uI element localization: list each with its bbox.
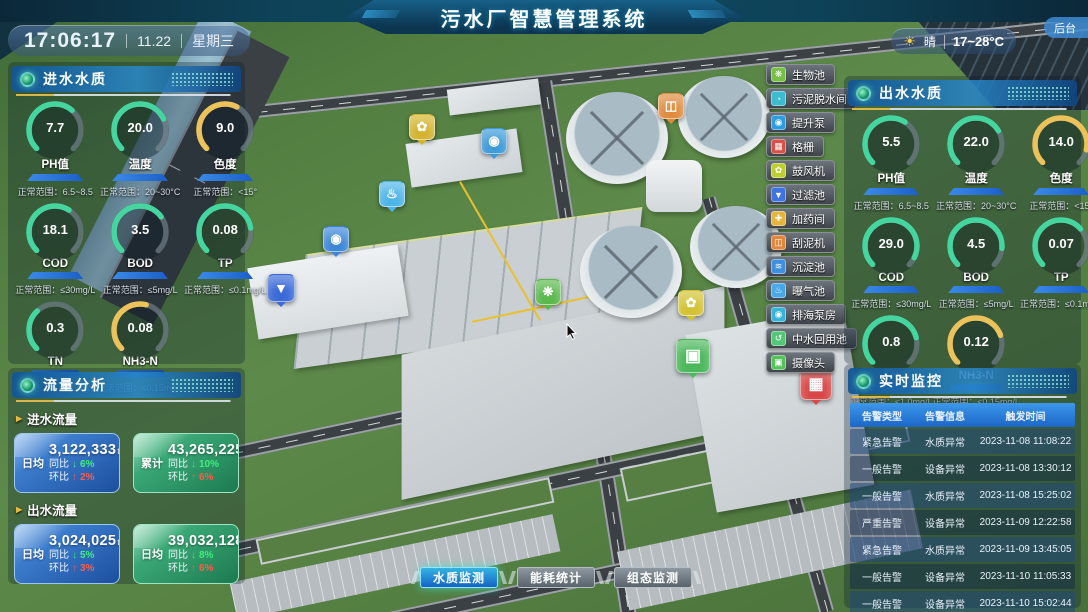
mom-percent: 6% xyxy=(199,562,213,575)
sun-icon: ☀ xyxy=(903,33,916,50)
gauge-value: 29.0 xyxy=(859,236,923,251)
legend-label: 摄像头 xyxy=(792,355,825,371)
panel-title: 出水水质 xyxy=(879,83,943,103)
gauge-normal-range: 正常范围：20~30°C xyxy=(100,185,180,198)
gauge-pedestal xyxy=(863,188,919,195)
gauge-pedestal xyxy=(112,272,168,279)
flow-card-累计: 累计 43,265,225t 同比↓10% 环比↑6% xyxy=(133,433,239,493)
yoy-percent: 8% xyxy=(199,549,213,562)
alarm-cell: 设备异常 xyxy=(914,461,976,476)
footer-nav: 水质监测能耗统计组态监测 xyxy=(420,567,692,588)
alarm-row: 一般告警设备异常2023-11-08 13:30:12 xyxy=(850,456,1075,481)
alarm-cell: 设备异常 xyxy=(914,569,976,584)
backstage-button[interactable]: 后台 xyxy=(1044,17,1088,38)
down-arrow-icon: ↓ xyxy=(72,458,77,471)
weather-widget: ☀ 晴 17~28°C xyxy=(891,28,1016,54)
pump-marker[interactable]: ◉ xyxy=(323,226,349,252)
gauge-value: 0.12 xyxy=(944,334,1008,349)
central-pump-structure xyxy=(646,160,702,212)
flow-value: 3,024,025t xyxy=(49,533,120,549)
map-legend-item-filter-pool[interactable]: ▼ 过滤池 xyxy=(766,184,835,205)
gauge-normal-range: 正常范围：6.5~8.5 xyxy=(18,185,93,198)
gauge-value: 0.3 xyxy=(23,320,87,335)
up-arrow-icon: ↑ xyxy=(72,471,77,484)
map-legend-item-camera[interactable]: ▣ 摄像头 xyxy=(766,352,835,373)
flow-analysis-panel: 流量分析 ▶进水流量日均 3,122,333t 同比↓6% 环比↑2% 累计 4… xyxy=(8,368,245,584)
gauge-色度: 9.0 色度 正常范围：<15° xyxy=(184,100,266,198)
alarm-table: 告警类型告警信息触发时间紧急告警水质异常2023-11-08 11:08:22一… xyxy=(848,403,1077,612)
scraper-icon: ◫ xyxy=(771,235,786,250)
filter-pool-icon: ▼ xyxy=(771,187,786,202)
alarm-cell: 设备异常 xyxy=(914,515,976,530)
gauge-value: 3.5 xyxy=(108,222,172,237)
legend-label: 加药间 xyxy=(792,211,825,227)
legend-label: 中水回用池 xyxy=(792,331,847,347)
header-underline xyxy=(16,94,237,96)
alarm-cell: 一般告警 xyxy=(850,596,914,611)
gauge-value: 14.0 xyxy=(1029,134,1088,149)
gauge-COD: 18.1 COD 正常范围：≤30mg/L xyxy=(14,202,96,296)
flow-value: 3,122,333t xyxy=(49,442,120,458)
up-arrow-icon: ↑ xyxy=(72,562,77,575)
triangle-icon: ▶ xyxy=(16,414,22,423)
panel-title: 进水水质 xyxy=(43,69,107,89)
alarm-row: 一般告警设备异常2023-11-10 11:05:33 xyxy=(850,564,1075,589)
gauge-温度: 20.0 温度 正常范围：20~30°C xyxy=(96,100,183,198)
alarm-cell: 一般告警 xyxy=(850,488,914,503)
alarm-cell: 水质异常 xyxy=(914,542,976,557)
legend-label: 污泥脱水间 xyxy=(792,91,847,107)
gauge-normal-range: 正常范围：≤0.1mg/L xyxy=(1020,297,1088,310)
panel-header: 出水水质 xyxy=(848,80,1077,106)
aeration-pool-icon: ♨ xyxy=(771,283,786,298)
aeration-marker[interactable]: ♨ xyxy=(379,181,405,207)
alarm-row: 紧急告警水质异常2023-11-08 11:08:22 xyxy=(850,429,1075,454)
flow-card-tag: 日均 xyxy=(141,546,163,562)
gauge-TP: 0.07 TP 正常范围：≤0.1mg/L xyxy=(1020,216,1088,310)
mom-percent: 2% xyxy=(80,471,94,484)
header-underline xyxy=(852,396,1073,398)
alarm-cell: 紧急告警 xyxy=(850,434,914,449)
panel-orb-icon xyxy=(20,378,35,393)
realtime-monitor-panel: 实时监控 告警类型告警信息触发时间紧急告警水质异常2023-11-08 11:0… xyxy=(844,364,1081,608)
legend-label: 鼓风机 xyxy=(792,163,825,179)
panel-header: 进水水质 xyxy=(12,66,241,92)
legend-label: 刮泥机 xyxy=(792,235,825,251)
legend-label: 曝气池 xyxy=(792,283,825,299)
column-header: 告警信息 xyxy=(914,408,976,423)
divider xyxy=(944,35,945,49)
gauge-pedestal xyxy=(197,174,253,181)
yoy-percent: 5% xyxy=(80,549,94,562)
flow-sections: ▶进水流量日均 3,122,333t 同比↓6% 环比↑2% 累计 43,265… xyxy=(12,409,241,584)
gauge-value: 4.5 xyxy=(944,236,1008,251)
gauge-pedestal xyxy=(197,272,253,279)
divider xyxy=(126,34,127,48)
gauge-value: 0.08 xyxy=(193,222,257,237)
legend-label: 格栅 xyxy=(792,139,814,155)
lift-pump-icon: ◉ xyxy=(771,115,786,130)
map-legend-item-sediment-pool[interactable]: ≋ 沉淀池 xyxy=(766,256,835,277)
gauge-pedestal xyxy=(948,188,1004,195)
legend-label: 排海泵房 xyxy=(792,307,836,323)
inlet-gauge-grid: 7.7 PH值 正常范围：6.5~8.5 20.0 温度 正常范围：20~30°… xyxy=(12,96,241,394)
down-arrow-icon: ↓ xyxy=(191,458,196,471)
map-legend-item-aeration-pool[interactable]: ♨ 曝气池 xyxy=(766,280,835,301)
gauge-value: 5.5 xyxy=(859,134,923,149)
weather-condition: 晴 xyxy=(924,33,936,50)
gauge-pedestal xyxy=(1033,188,1088,195)
flow-card-日均: 日均 3,024,025t 同比↓5% 环比↑3% xyxy=(14,524,120,584)
blower-icon: ✿ xyxy=(771,163,786,178)
footer-button-能耗统计[interactable]: 能耗统计 xyxy=(517,567,595,588)
clock-time: 17:06:17 xyxy=(24,29,116,53)
dosing-room-icon: ✚ xyxy=(771,211,786,226)
map-legend-item-bio-pool[interactable]: ❋ 生物池 xyxy=(766,64,835,85)
header-underline xyxy=(16,400,237,402)
alarm-cell: 紧急告警 xyxy=(850,542,914,557)
alarm-row: 一般告警水质异常2023-11-08 15:25:02 xyxy=(850,483,1075,508)
gauge-TP: 0.08 TP 正常范围：≤0.1mg/L xyxy=(184,202,266,296)
reuse-pool-icon: ↺ xyxy=(771,331,786,346)
camera-icon: ▣ xyxy=(771,355,786,370)
scraper-marker[interactable]: ◫ xyxy=(658,93,684,119)
map-legend-item-sea-pump-house[interactable]: ◉ 排海泵房 xyxy=(766,304,846,325)
banner-decoration xyxy=(362,10,401,18)
map-legend-item-blower[interactable]: ✿ 鼓风机 xyxy=(766,160,835,181)
gauge-normal-range: 正常范围：≤5mg/L xyxy=(939,297,1014,310)
grate-icon: ▦ xyxy=(771,139,786,154)
alarm-cell: 2023-11-08 15:25:02 xyxy=(976,490,1075,501)
dots-decoration xyxy=(1007,374,1069,388)
triangle-icon: ▶ xyxy=(16,505,22,514)
gauge-pedestal xyxy=(112,174,168,181)
sea-pump-house-icon: ◉ xyxy=(771,307,786,322)
gauge-normal-range: 正常范围：6.5~8.5 xyxy=(854,199,929,212)
filter-marker[interactable]: ▼ xyxy=(267,274,295,302)
down-arrow-icon: ↓ xyxy=(191,549,196,562)
weekday: 星期三 xyxy=(192,31,234,51)
gauge-PH值: 7.7 PH值 正常范围：6.5~8.5 xyxy=(14,100,96,198)
gauge-温度: 22.0 温度 正常范围：20~30°C xyxy=(932,114,1019,212)
mouse-cursor xyxy=(566,323,580,341)
yoy-percent: 6% xyxy=(80,458,94,471)
alarm-cell: 2023-11-10 11:05:33 xyxy=(976,571,1075,582)
mom-percent: 6% xyxy=(199,471,213,484)
map-legend-item-grate[interactable]: ▦ 格栅 xyxy=(766,136,824,157)
column-header: 告警类型 xyxy=(850,408,914,423)
flow-card-tag: 累计 xyxy=(141,455,163,471)
outlet-quality-panel: 出水水质 5.5 PH值 正常范围：6.5~8.5 xyxy=(844,76,1081,364)
gauge-value: 0.8 xyxy=(859,334,923,349)
gauge-pedestal xyxy=(27,174,83,181)
flow-card-日均: 日均 3,122,333t 同比↓6% 环比↑2% xyxy=(14,433,120,493)
down-arrow-icon: ↓ xyxy=(72,549,77,562)
alarm-cell: 2023-11-08 13:30:12 xyxy=(976,463,1075,474)
header-underline xyxy=(852,108,1073,110)
blower-marker[interactable]: ✿ xyxy=(409,114,435,140)
flow-value: 39,032,128t xyxy=(168,533,239,549)
panel-header: 实时监控 xyxy=(848,368,1077,394)
bio-marker[interactable]: ❋ xyxy=(535,279,561,305)
alarm-cell: 水质异常 xyxy=(914,488,976,503)
gauge-pedestal xyxy=(948,286,1004,293)
gauge-PH值: 5.5 PH值 正常范围：6.5~8.5 xyxy=(850,114,932,212)
alarm-cell: 2023-11-09 12:22:58 xyxy=(976,517,1075,528)
camera-marker[interactable]: ▣ xyxy=(676,339,710,373)
gauge-色度: 14.0 色度 正常范围：<15° xyxy=(1020,114,1088,212)
datetime-widget: 17:06:17 11.22 星期三 xyxy=(8,25,250,56)
alarm-row: 严重告警设备异常2023-11-09 12:22:58 xyxy=(850,510,1075,535)
map-legend-item-dosing-room[interactable]: ✚ 加药间 xyxy=(766,208,835,229)
gauge-normal-range: 正常范围：<15° xyxy=(1029,199,1088,212)
flow-section-label: ▶出水流量 xyxy=(16,500,241,519)
flow-card-日均: 日均 39,032,128t 同比↓8% 环比↑6% xyxy=(133,524,239,584)
gauge-value: 18.1 xyxy=(23,222,87,237)
date: 11.22 xyxy=(137,33,171,49)
column-header: 触发时间 xyxy=(976,408,1075,423)
alarm-cell: 设备异常 xyxy=(914,596,976,611)
blower-marker[interactable]: ✿ xyxy=(678,290,704,316)
temperature-range: 17~28°C xyxy=(953,34,1004,49)
flow-value: 43,265,225t xyxy=(168,442,239,458)
alarm-cell: 一般告警 xyxy=(850,461,914,476)
divider xyxy=(181,34,182,48)
panel-orb-icon xyxy=(20,72,35,87)
dots-decoration xyxy=(171,378,233,392)
gauge-normal-range: 正常范围：≤30mg/L xyxy=(851,297,931,310)
clarifier-tank xyxy=(678,76,770,158)
alarm-row: 一般告警设备异常2023-11-10 15:02:44 xyxy=(850,591,1075,612)
dots-decoration xyxy=(171,72,233,86)
gauge-value: 20.0 xyxy=(108,120,172,135)
gauge-pedestal xyxy=(1033,286,1088,293)
alarm-cell: 2023-11-09 13:45:05 xyxy=(976,544,1075,555)
bio-pool-icon: ❋ xyxy=(771,67,786,82)
gauge-normal-range: 正常范围：<15° xyxy=(193,185,257,198)
title-banner: 污水厂智慧管理系统 xyxy=(346,0,742,34)
panel-orb-icon xyxy=(856,374,871,389)
sludge-dewater-icon: ◔ xyxy=(771,91,786,106)
legend-label: 生物池 xyxy=(792,67,825,83)
alarm-row: 紧急告警水质异常2023-11-09 13:45:05 xyxy=(850,537,1075,562)
gauge-BOD: 3.5 BOD 正常范围：≤5mg/L xyxy=(96,202,183,296)
gauge-value: 0.07 xyxy=(1029,236,1088,251)
dots-decoration xyxy=(1007,86,1069,100)
inlet-quality-panel: 进水水质 7.7 PH值 正常范围：6.5~8.5 xyxy=(8,62,245,364)
page-title: 污水厂智慧管理系统 xyxy=(441,3,648,32)
panel-orb-icon xyxy=(856,86,871,101)
flow-card-tag: 日均 xyxy=(22,455,44,471)
clarifier-tank xyxy=(580,226,682,318)
alarm-cell: 水质异常 xyxy=(914,434,976,449)
map-legend-item-scraper[interactable]: ◫ 刮泥机 xyxy=(766,232,835,253)
alarm-table-header: 告警类型告警信息触发时间 xyxy=(850,403,1075,427)
gauge-normal-range: 正常范围：≤30mg/L xyxy=(15,283,95,296)
gauge-value: 0.08 xyxy=(108,320,172,335)
gauge-BOD: 4.5 BOD 正常范围：≤5mg/L xyxy=(932,216,1019,310)
gauge-normal-range: 正常范围：≤5mg/L xyxy=(103,283,178,296)
panel-title: 流量分析 xyxy=(43,375,107,395)
alarm-cell: 严重告警 xyxy=(850,515,914,530)
panel-title: 实时监控 xyxy=(879,371,943,391)
alarm-cell: 一般告警 xyxy=(850,569,914,584)
flow-card-tag: 日均 xyxy=(22,546,44,562)
yoy-percent: 10% xyxy=(199,458,219,471)
up-arrow-icon: ↑ xyxy=(191,562,196,575)
banner-decoration xyxy=(688,10,727,18)
gauge-normal-range: 正常范围：20~30°C xyxy=(936,199,1016,212)
legend-label: 提升泵 xyxy=(792,115,825,131)
mom-percent: 3% xyxy=(80,562,94,575)
alarm-cell: 2023-11-10 15:02:44 xyxy=(976,598,1075,609)
footer-button-组态监测[interactable]: 组态监测 xyxy=(614,567,692,588)
gauge-value: 7.7 xyxy=(23,120,87,135)
footer-button-水质监测[interactable]: 水质监测 xyxy=(420,567,498,588)
legend-label: 沉淀池 xyxy=(792,259,825,275)
gauge-value: 9.0 xyxy=(193,120,257,135)
legend-label: 过滤池 xyxy=(792,187,825,203)
alarm-cell: 2023-11-08 11:08:22 xyxy=(976,436,1075,447)
gauge-value: 22.0 xyxy=(944,134,1008,149)
gauge-COD: 29.0 COD 正常范围：≤30mg/L xyxy=(850,216,932,310)
map-legend-item-lift-pump[interactable]: ◉ 提升泵 xyxy=(766,112,835,133)
panel-header: 流量分析 xyxy=(12,372,241,398)
gauge-normal-range: 正常范围：≤0.1mg/L xyxy=(184,283,266,296)
gauge-pedestal xyxy=(863,286,919,293)
up-arrow-icon: ↑ xyxy=(191,471,196,484)
pump-marker[interactable]: ◉ xyxy=(481,128,507,154)
sediment-pool-icon: ≋ xyxy=(771,259,786,274)
gauge-pedestal xyxy=(27,272,83,279)
flow-section-label: ▶进水流量 xyxy=(16,409,241,428)
